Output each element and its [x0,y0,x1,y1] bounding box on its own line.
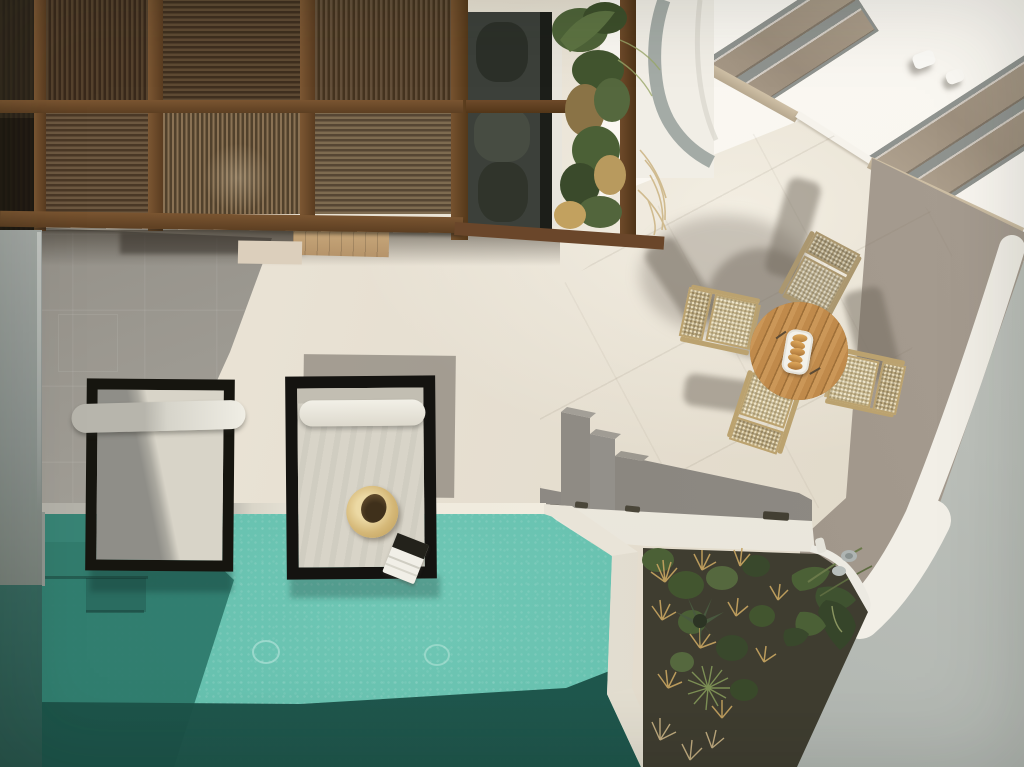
wall-fixture-center [845,553,853,559]
aerial-villa-terrace-photo [0,0,1024,767]
wall-fixture [832,566,846,576]
garden-bed [0,0,1024,767]
